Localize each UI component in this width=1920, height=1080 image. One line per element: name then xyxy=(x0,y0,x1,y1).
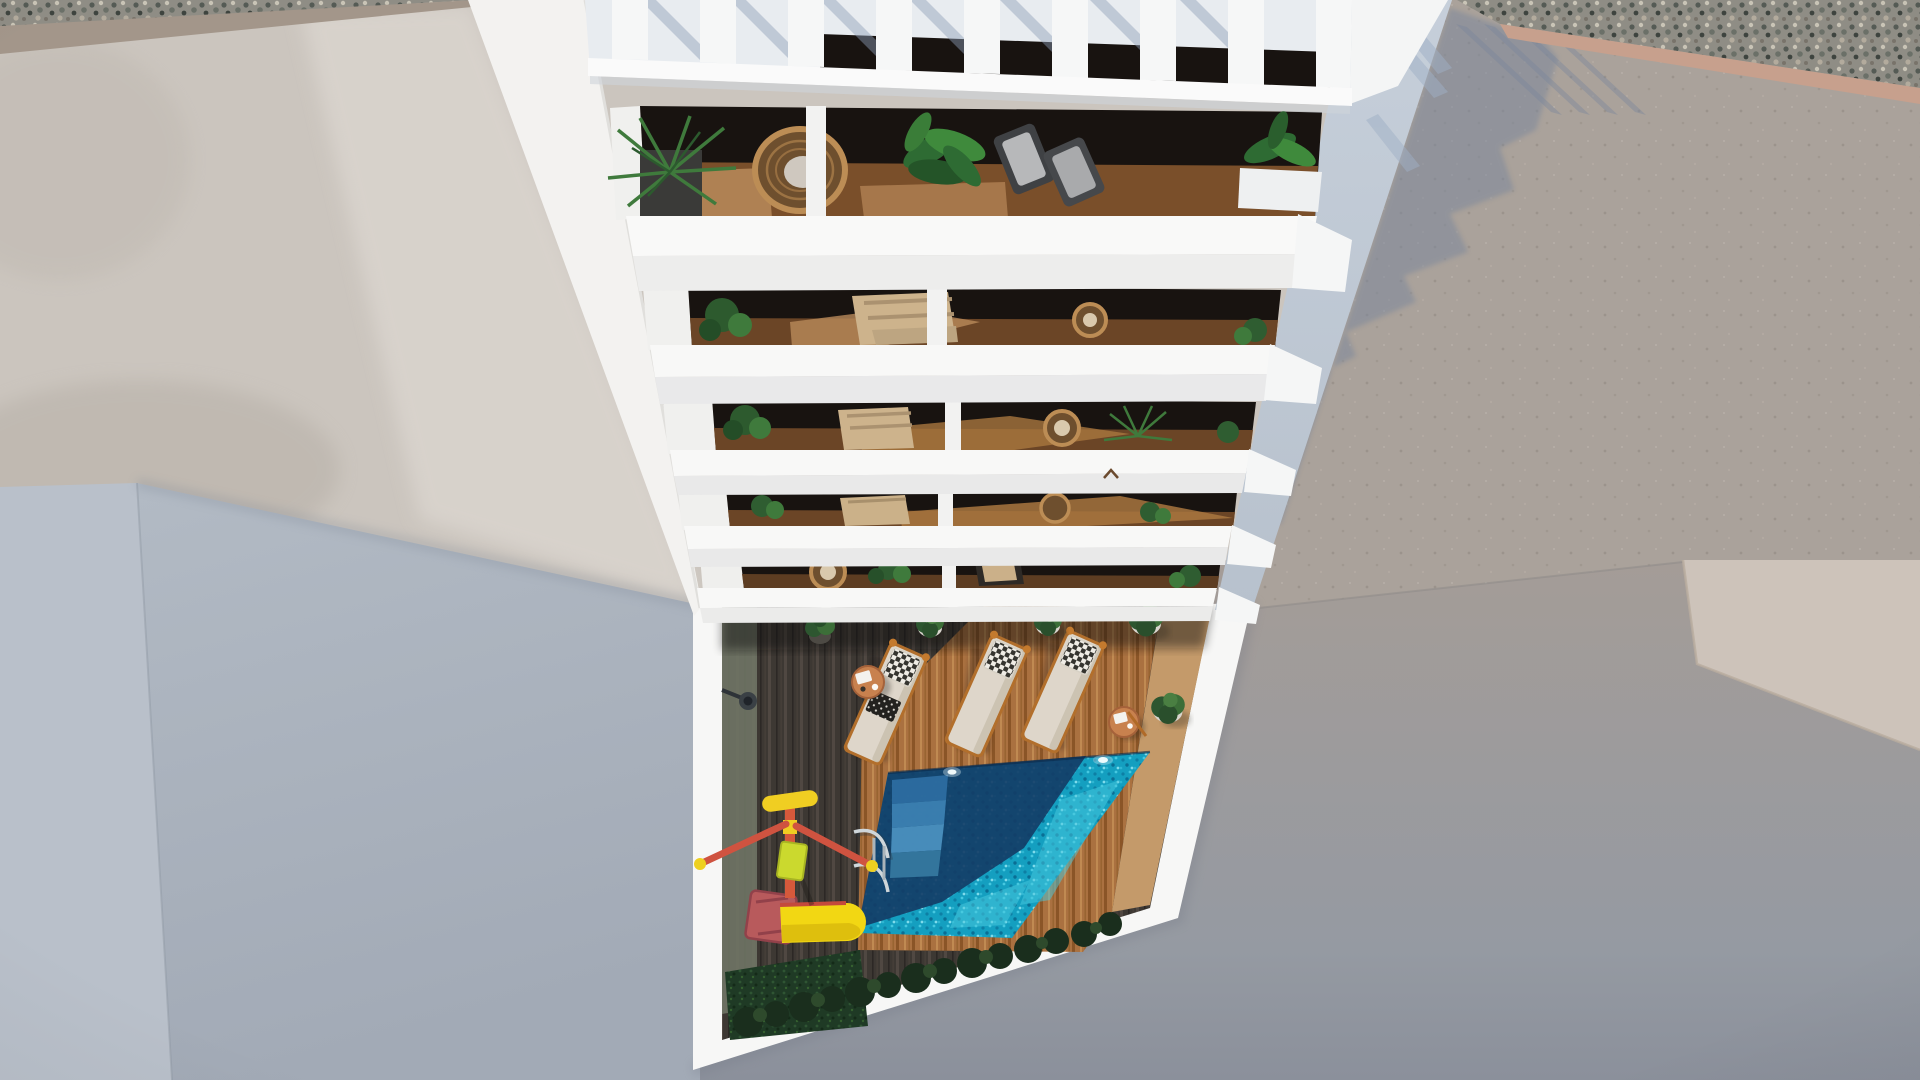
vignette xyxy=(0,0,1920,1080)
aerial-render xyxy=(0,0,1920,1080)
render-viewport xyxy=(0,0,1920,1080)
